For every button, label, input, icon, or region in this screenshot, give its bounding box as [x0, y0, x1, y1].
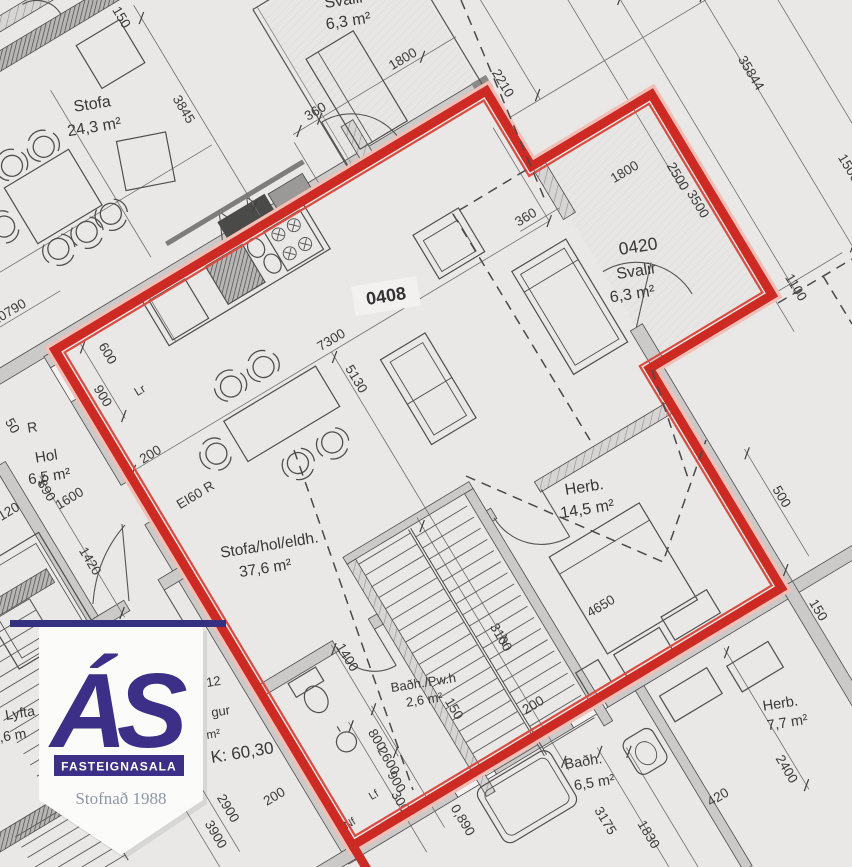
- svg-text:Stofnað 1988: Stofnað 1988: [75, 789, 166, 808]
- svg-text:gur: gur: [210, 702, 232, 720]
- svg-text:m²: m²: [205, 726, 221, 742]
- svg-text:12: 12: [205, 673, 222, 690]
- svg-text:Hol: Hol: [34, 446, 59, 466]
- svg-text:ÁS: ÁS: [47, 652, 187, 770]
- svg-text:FASTEIGNASALA: FASTEIGNASALA: [61, 760, 177, 774]
